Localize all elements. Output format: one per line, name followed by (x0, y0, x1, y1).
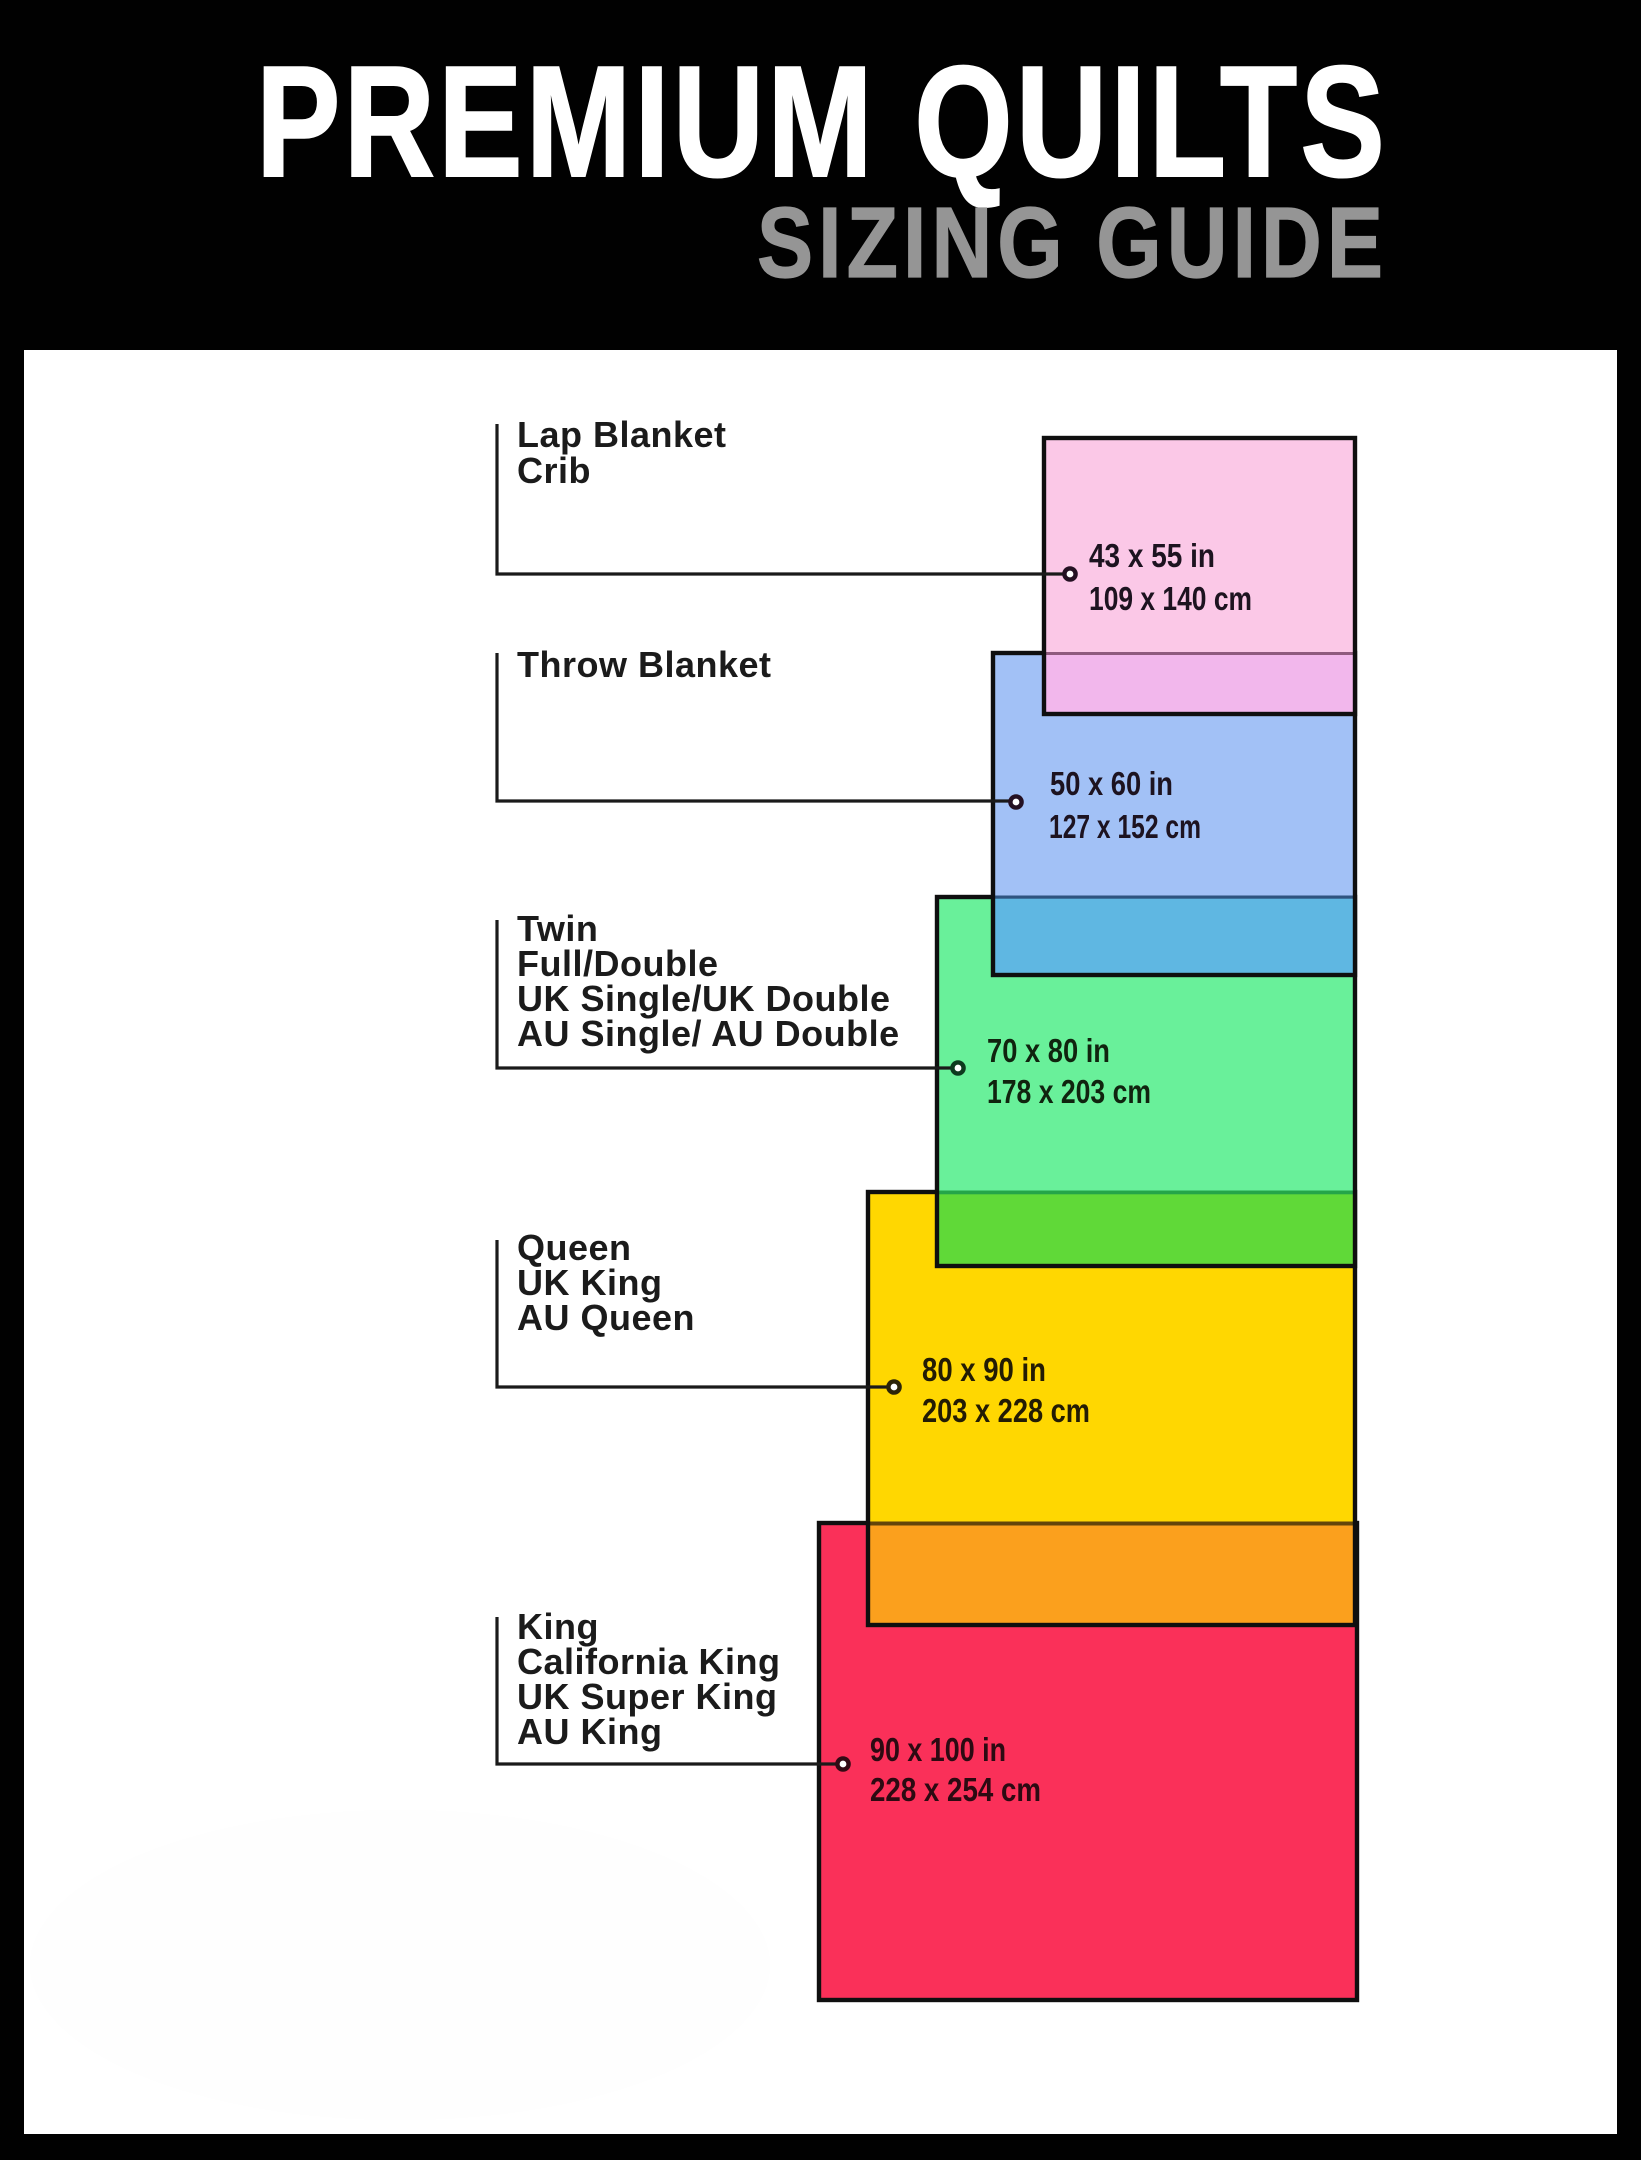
svg-text:109 x 140 cm: 109 x 140 cm (1089, 580, 1252, 617)
svg-text:Throw Blanket: Throw Blanket (517, 644, 772, 685)
svg-text:PREMIUM QUILTS: PREMIUM QUILTS (256, 34, 1388, 210)
svg-text:43 x 55 in: 43 x 55 in (1089, 537, 1215, 574)
svg-text:AU King: AU King (517, 1711, 662, 1752)
svg-text:228 x 254 cm: 228 x 254 cm (870, 1771, 1041, 1808)
svg-text:50 x 60 in: 50 x 60 in (1050, 765, 1173, 802)
svg-text:90 x 100 in: 90 x 100 in (870, 1731, 1006, 1768)
svg-text:Crib: Crib (517, 450, 591, 491)
svg-text:178 x 203 cm: 178 x 203 cm (987, 1073, 1151, 1110)
svg-text:80 x 90 in: 80 x 90 in (922, 1351, 1046, 1388)
svg-text:70 x 80 in: 70 x 80 in (987, 1032, 1110, 1069)
svg-text:127 x 152 cm: 127 x 152 cm (1049, 808, 1201, 845)
svg-text:SIZING GUIDE: SIZING GUIDE (757, 187, 1388, 299)
svg-text:203 x 228 cm: 203 x 228 cm (922, 1392, 1090, 1429)
svg-text:Lap Blanket: Lap Blanket (517, 414, 727, 455)
svg-text:AU Queen: AU Queen (517, 1297, 695, 1338)
svg-text:AU Single/ AU Double: AU Single/ AU Double (517, 1013, 900, 1054)
